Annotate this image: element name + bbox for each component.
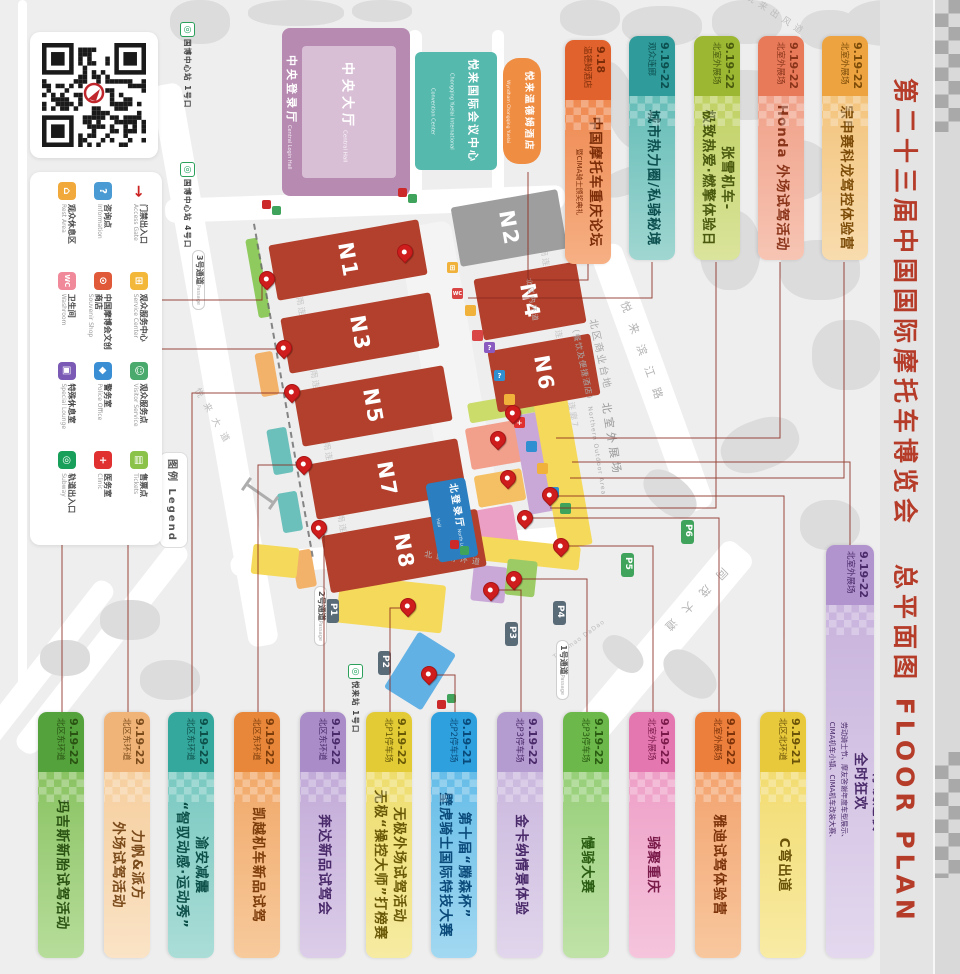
banner-date: 9.19-22 — [658, 718, 670, 772]
poster-title: 第二十三届中国国际摩托车博览会 — [891, 78, 920, 528]
legend-item: →门禁出入口Access Gate — [116, 182, 148, 266]
central-hall: 中央大厅Central Hall — [302, 46, 396, 178]
souvenir-shop-icon: ⊙ — [94, 272, 112, 290]
legend-item-label-en: Washroom — [60, 294, 67, 326]
passage-sign-label: 3号通道 — [195, 255, 204, 285]
greenery-blob — [40, 640, 90, 676]
hall-label-N8: N8 — [389, 531, 419, 571]
metro-entrance-label: 国博中心站 4号口 — [182, 179, 193, 248]
greenery-blob — [140, 660, 200, 700]
hall-label-N2: N2 — [494, 208, 524, 248]
gate-icon — [447, 694, 456, 703]
event-banner-bottom-7: 9.19-21北P2停车场第十届“腾森杯”壁虎骑士国际特技大赛 — [431, 712, 477, 958]
event-banner-top-5: 9.19-22北室外展场宗申赛科龙驾控体验营 — [822, 36, 868, 260]
banner-title-line: “CIMA摩友之夜” — [870, 721, 874, 842]
metro-entrance: ◎国博中心站 4号口 — [180, 162, 195, 248]
banner-venue: 北区东环道 — [317, 718, 327, 772]
parking-badge-P5: P5 — [621, 553, 634, 577]
banner-title-line: 无极“操控大师”打榜赛 — [372, 790, 388, 940]
legend-item: ☺观众服务点Visitor Service — [116, 362, 148, 446]
legend-item: WC卫生间Washroom — [44, 272, 76, 356]
central-hall-label: 中央大厅 — [340, 62, 355, 130]
banner-title-line: 无极外场试驾活动 — [391, 807, 407, 923]
legend-item-label-en: Police Office — [96, 384, 103, 421]
service-point-icon — [472, 330, 483, 341]
banner-venue: 北区东环道 — [55, 718, 65, 772]
banner-venue: 北区北环道 — [777, 718, 787, 772]
banner-title-line: 全时狂欢 — [851, 753, 867, 811]
banner-title-line: 慢骑大赛 — [578, 836, 594, 894]
banner-date: 9.19-22 — [851, 42, 863, 96]
service-point-icon — [537, 463, 548, 474]
police-office-icon: ◆ — [94, 362, 112, 380]
banner-title-line: C弯出道 — [775, 838, 791, 892]
event-banner-bottom-6: 9.19-22北P1停车场无极外场试驾活动无极“操控大师”打榜赛 — [366, 712, 412, 958]
gate-icon — [437, 700, 446, 709]
legend-item-label: 卫生间 — [67, 294, 76, 326]
event-banner-bottom-8: 9.19-22北P3停车场金卡纳情景体验 — [497, 712, 543, 958]
legend-item-label-en: Visitor Service — [132, 384, 139, 427]
parking-label: P2 — [380, 655, 389, 668]
banner-title-line: 中国摩托车重庆论坛 — [586, 117, 602, 248]
banner-title-line: 骑聚重庆 — [644, 836, 660, 894]
banner-date: 9.19-22 — [67, 718, 79, 772]
gate-icon — [450, 540, 459, 549]
legend-item: ▤售票点Tickets — [116, 451, 148, 535]
banner-title-line: 张雪机车- — [719, 146, 735, 211]
hall-label-N1: N1 — [333, 240, 363, 280]
legend-item: ⊙中国摩博会文创商店Souvenir Shop — [80, 272, 112, 356]
banner-subtitle-line: CIMA机车小镇、CIMA机车改装大赛、 — [827, 722, 836, 842]
convention-center: 悦来国际会议中心Chongqing Yuelai International C… — [415, 52, 497, 170]
legend-item-label: 医务室 — [103, 473, 112, 497]
passage-sign-label: Passage — [195, 285, 201, 305]
banner-venue: 温德姆酒店 — [582, 46, 592, 100]
banner-venue: 北室外展场 — [712, 718, 722, 772]
banner-title-line: 渝安减震 — [193, 836, 209, 894]
poster-subtitle: 总平面图 FLOOR PLAN — [891, 564, 920, 925]
legend-item-label-en: Clinic — [96, 473, 103, 497]
metro-logo-icon: ◎ — [180, 162, 195, 177]
banner-title-line: 奔达新品试驾会 — [315, 814, 331, 916]
legend-item-label-en: Subway — [60, 473, 67, 513]
banner-venue: 北区东环道 — [185, 718, 195, 772]
event-banner-bottom-3: 9.19-22北区东环道渝安减震“智驭动感·运动秀” — [168, 712, 214, 958]
metro-entrance-label: 悦来站 1号口 — [350, 681, 361, 733]
legend-item: ?咨询点Information — [80, 182, 112, 266]
legend-tab-label: 图例 Legend — [166, 459, 181, 542]
hall-label-N3: N3 — [345, 313, 375, 353]
banner-title-line: 雅迪试驾体验营 — [710, 814, 726, 916]
greenery-blob — [100, 600, 160, 640]
legend-item-label: 门禁出入口 — [139, 204, 148, 244]
event-banner-bottom-1: 9.19-22北区东环道玛吉斯新胎试驾活动 — [38, 712, 84, 958]
passage-sign-label: 1号通道 — [559, 645, 568, 675]
banner-date: 9.19-22 — [329, 718, 341, 772]
event-banner-bottom-2: 9.19-22北区东环道力帆&派方外场试驾活动 — [104, 712, 150, 958]
banner-date: 9.19-22 — [263, 718, 275, 772]
parking-label: P3 — [507, 626, 516, 639]
banner-title-line: 极致热爱·燃擎体验日 — [700, 110, 716, 247]
hall-label-N7: N7 — [372, 459, 402, 499]
service-point-icon: ⊞ — [447, 262, 458, 273]
banner-venue: 北室外展场 — [845, 551, 855, 605]
wyndham-hotel: 悦来温德姆酒店Wyndham Chongqing Yuelai — [503, 58, 541, 164]
banner-date: 9.19-22 — [724, 718, 736, 772]
gate-icon — [398, 188, 407, 197]
banner-date: 9.18 — [594, 46, 606, 100]
parking-label: P4 — [555, 605, 564, 618]
banner-venue: 北P2停车场 — [448, 718, 458, 772]
convention-center-label: 悦来国际会议中心 — [467, 59, 480, 163]
greenery-blob — [812, 320, 882, 390]
road — [18, 0, 27, 700]
qr-code — [42, 43, 146, 147]
event-banner-top-4: 9.19-22北室外展场Honda 外场试驾活动 — [758, 36, 804, 260]
banner-title-line: 城市热力圈/私骑秘境 — [644, 110, 660, 246]
greenery-blob — [170, 0, 230, 44]
legend-item-label: 观众休息区 — [67, 204, 76, 244]
hall-label-N5: N5 — [358, 386, 388, 426]
metro-entrance-label: 国博中心站 1号口 — [182, 39, 193, 108]
banner-date: 9.19-22 — [658, 42, 670, 96]
banner-venue: 北P3停车场 — [580, 718, 590, 772]
banner-title-line: 凯越机车新品试驾 — [249, 807, 265, 923]
poster-title-strip: 第二十三届中国国际摩托车博览会总平面图 FLOOR PLAN — [880, 0, 933, 974]
legend-card: →门禁出入口Access Gate⊞观众服务中心Service Center☺观… — [30, 172, 162, 545]
banner-venue: 北区东环道 — [121, 718, 131, 772]
passage-sign: 2号通道Passage — [314, 586, 327, 646]
legend-item-label-en: Tickets — [132, 473, 139, 497]
legend-item-label: 特殊休息室 — [67, 384, 76, 430]
legend-item-label-en: Rest Area — [60, 204, 67, 244]
legend-item: ⌂观众休息区Rest Area — [44, 182, 76, 266]
legend-item-label-en: Information — [96, 204, 103, 239]
parking-badge-P2: P2 — [378, 651, 391, 675]
banner-date: 9.19-22 — [197, 718, 209, 772]
activity-block — [277, 491, 304, 534]
passage-sign-label: 2号通道 — [317, 591, 326, 621]
gate-icon — [460, 546, 469, 555]
parking-label: P1 — [328, 603, 337, 616]
service-point-icon — [526, 441, 537, 452]
metro-entrance: ◎悦来站 1号口 — [348, 664, 363, 733]
legend-item-label: 观众服务中心 — [139, 294, 148, 342]
passage-sign-label: Passage — [559, 675, 565, 695]
tickets-icon: ▤ — [130, 451, 148, 469]
central-login-hall-label: 中央登录厅 — [285, 55, 298, 125]
subway-icon: ◎ — [58, 451, 76, 469]
legend-item-label: 售票点 — [139, 473, 148, 497]
banner-venue: 北室外展场 — [839, 42, 849, 96]
passage-sign-label: Passage — [317, 621, 323, 641]
metro-logo-icon: ◎ — [348, 664, 363, 679]
gate-icon — [272, 206, 281, 215]
legend-item-label-en: Access Gate — [132, 204, 139, 244]
parking-badge-P3: P3 — [505, 622, 518, 646]
gate-arrow-icon: → — [130, 182, 148, 200]
parking-label: P6 — [683, 524, 692, 537]
greenery-blob — [352, 0, 412, 22]
north-login-hall-label: 北登录厅 — [447, 482, 466, 529]
event-banner-bottom-13: 9.19-22北室外展场“CIMA摩友之夜”全时狂欢劳动骑士节、摩友答谢年度车型… — [826, 545, 874, 958]
wyndham-hotel-label: 悦来温德姆酒店 — [523, 71, 534, 152]
service-point-icon — [560, 503, 571, 514]
gate-icon — [408, 194, 417, 203]
banner-title-line: “智驭动感·运动秀” — [174, 801, 190, 928]
clinic-icon: + — [94, 451, 112, 469]
banner-date: 9.19-22 — [133, 718, 145, 772]
banner-date: 9.19-21 — [789, 718, 801, 772]
banner-title-line: 金卡纳情景体验 — [512, 814, 528, 916]
parking-badge-P1: P1 — [326, 599, 339, 623]
greenery-blob — [714, 408, 806, 482]
legend-item-label-en: Souvenir Shop — [86, 294, 93, 356]
banner-date: 9.19-22 — [526, 718, 538, 772]
event-banner-bottom-10: 9.19-22北室外展场骑聚重庆 — [629, 712, 675, 958]
event-banner-bottom-11: 9.19-22北室外展场雅迪试驾体验营 — [695, 712, 741, 958]
banner-date: 9.19-22 — [395, 718, 407, 772]
legend-item-label: 轨道出入口 — [67, 473, 76, 513]
banner-title-line: 壁虎骑士国际特技大赛 — [437, 793, 453, 938]
hall-label-N6: N6 — [529, 353, 559, 393]
passage-sign: 1号通道Passage — [556, 640, 569, 700]
banner-venue: 北室外展场 — [775, 42, 785, 96]
legend-item: ◎轨道出入口Subway — [44, 451, 76, 535]
passage-sign: 3号通道Passage — [192, 250, 205, 310]
legend-item: ⊞观众服务中心Service Center — [116, 272, 148, 356]
checker-pattern-top — [935, 0, 960, 132]
service-point-icon: ? — [484, 342, 495, 353]
legend-item-label: 警务室 — [103, 384, 112, 421]
greenery-blob — [560, 0, 620, 36]
legend-item-label-en: Special Lounge — [60, 384, 67, 430]
banner-venue: 北室外展场 — [711, 42, 721, 96]
greenery-blob — [800, 500, 860, 550]
banner-venue: 北P1停车场 — [383, 718, 393, 772]
event-banner-bottom-12: 9.19-21北区北环道C弯出道 — [760, 712, 806, 958]
service-point-icon: ? — [494, 370, 505, 381]
event-banner-bottom-9: 9.19-22北P3停车场慢骑大赛 — [563, 712, 609, 958]
banner-date: 9.19-22 — [723, 42, 735, 96]
banner-date: 9.19-22 — [787, 42, 799, 96]
edge-decoration-strip — [933, 0, 960, 974]
service-point-icon: WC — [452, 288, 463, 299]
banner-date: 9.19-22 — [857, 551, 869, 605]
banner-title-line: Honda 外场试驾活动 — [773, 105, 789, 252]
legend-item: ▣特殊休息室Special Lounge — [44, 362, 76, 446]
banner-date: 9.19-21 — [460, 718, 472, 772]
visitor-service-icon: ☺ — [130, 362, 148, 380]
greenery-blob — [248, 0, 344, 26]
banner-subtitle-line: 劳动骑士节、摩友答谢年度车型展示、 — [839, 722, 848, 841]
parking-label: P5 — [623, 557, 632, 570]
legend-item-label-en: Service Center — [132, 294, 139, 342]
event-banner-bottom-4: 9.19-22北区东环道凯越机车新品试驾 — [234, 712, 280, 958]
legend-item-label: 中国摩博会文创商店 — [94, 294, 112, 356]
floor-plan-poster: N1N3N5N7N8N2N4N6风雨连廊1风雨连廊2风雨连廊3风雨连廊4风雨连廊… — [0, 0, 960, 974]
legend-item-label: 观众服务点 — [139, 384, 148, 427]
qr-code-card — [30, 32, 158, 158]
banner-title-line: 第十届“腾森杯” — [456, 812, 472, 919]
service-center-icon: ⊞ — [130, 272, 148, 290]
banner-title-line: 宗申赛科龙驾控体验营 — [837, 106, 853, 251]
central-login-hall: 中央登录厅Central Login Hall 中央大厅Central Hall — [282, 28, 410, 196]
checker-pattern-bottom — [935, 752, 960, 878]
banner-venue: 北室外展场 — [646, 718, 656, 772]
special-lounge-icon: ▣ — [58, 362, 76, 380]
metro-entrance: ◎国博中心站 1号口 — [180, 22, 195, 108]
service-point-icon — [465, 305, 476, 316]
banner-venue: 北P3停车场 — [514, 718, 524, 772]
metro-logo-icon: ◎ — [180, 22, 195, 37]
banner-title-line: 玛吉斯新胎试驾活动 — [53, 800, 69, 931]
gate-icon — [262, 200, 271, 209]
washroom-icon: WC — [58, 272, 76, 290]
banner-subtitle-line: 暨CIMA骑士颁奖典礼 — [574, 149, 583, 216]
banner-venue: 观众连廊 — [646, 42, 656, 96]
event-banner-top-1: 9.18温德姆酒店中国摩托车重庆论坛暨CIMA骑士颁奖典礼 — [565, 40, 611, 264]
activity-block — [251, 544, 300, 579]
legend-item-label: 咨询点 — [103, 204, 112, 239]
information-icon: ? — [94, 182, 112, 200]
banner-venue: 北区东环道 — [251, 718, 261, 772]
parking-badge-P6: P6 — [681, 520, 694, 544]
banner-title-line: 力帆&派方 — [129, 830, 145, 901]
event-banner-bottom-5: 9.19-22北区东环道奔达新品试驾会 — [300, 712, 346, 958]
legend-tab: 图例 Legend — [159, 452, 188, 548]
service-point-icon — [504, 394, 515, 405]
banner-date: 9.19-22 — [592, 718, 604, 772]
event-banner-top-3: 9.19-22北室外展场张雪机车-极致热爱·燃擎体验日 — [694, 36, 740, 260]
event-banner-top-2: 9.19-22观众连廊城市热力圈/私骑秘境 — [629, 36, 675, 260]
parking-badge-P4: P4 — [553, 601, 566, 625]
legend-item: ◆警务室Police Office — [80, 362, 112, 446]
legend-item: +医务室Clinic — [80, 451, 112, 535]
rest-area-icon: ⌂ — [58, 182, 76, 200]
banner-title-line: 外场试驾活动 — [110, 822, 126, 909]
